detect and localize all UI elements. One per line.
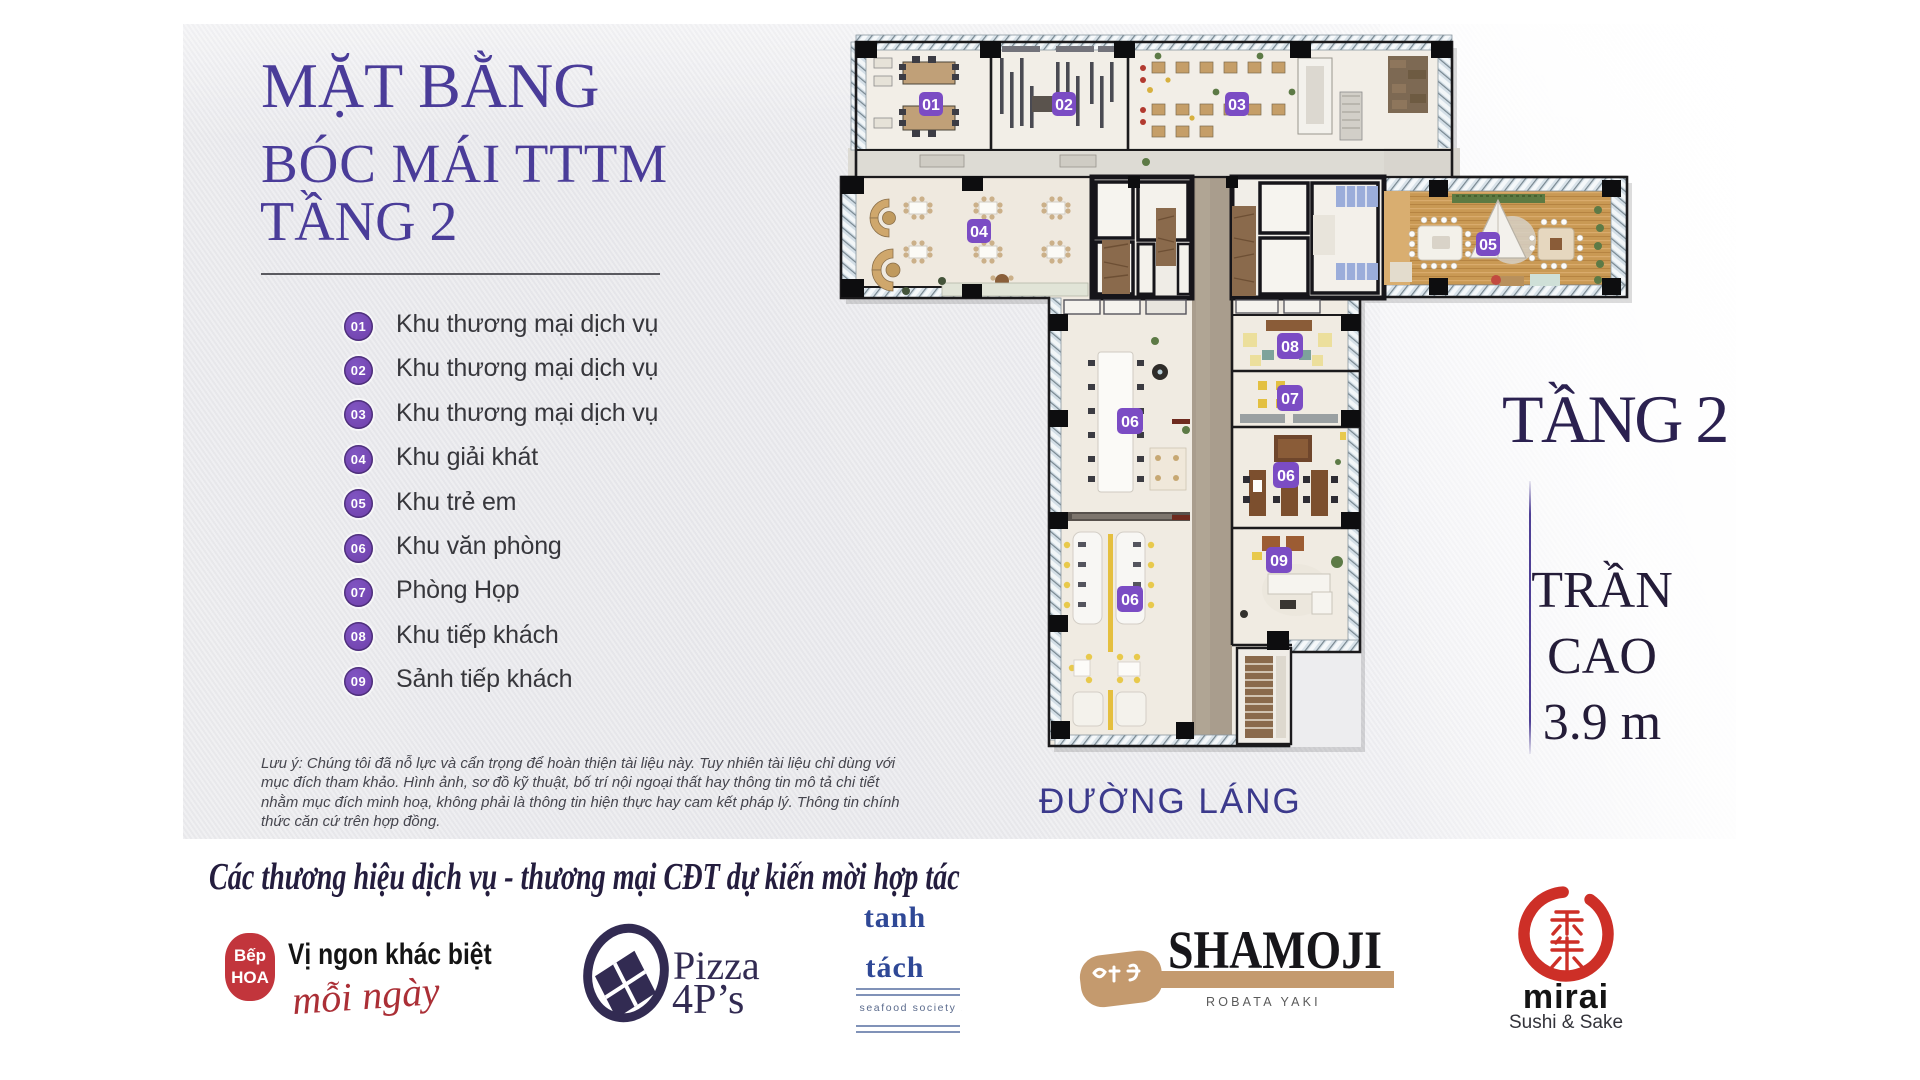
svg-text:4P’s: 4P’s [672,977,744,1023]
svg-text:09: 09 [1270,553,1288,570]
svg-text:07: 07 [1281,391,1299,408]
svg-text:03: 03 [1228,97,1246,114]
svg-text:04: 04 [970,224,988,241]
svg-text:05: 05 [1479,237,1497,254]
svg-text:06: 06 [1277,468,1295,485]
svg-text:SHAMOJI: SHAMOJI [1168,920,1382,980]
svg-text:06: 06 [1121,592,1139,609]
svg-text:08: 08 [1281,339,1299,356]
svg-text:06: 06 [1121,414,1139,431]
svg-text:mirai: mirai [1523,978,1609,1016]
svg-text:Bếp: Bếp [234,946,266,965]
svg-text:HOA: HOA [231,968,269,987]
svg-text:. seafood society .: . seafood society . [854,1002,962,1014]
svg-text:02: 02 [1055,97,1073,114]
svg-text:ROBATA YAKI: ROBATA YAKI [1206,995,1321,1009]
svg-text:Sushi & Sake: Sushi & Sake [1509,1012,1623,1033]
svg-text:01: 01 [922,97,940,114]
